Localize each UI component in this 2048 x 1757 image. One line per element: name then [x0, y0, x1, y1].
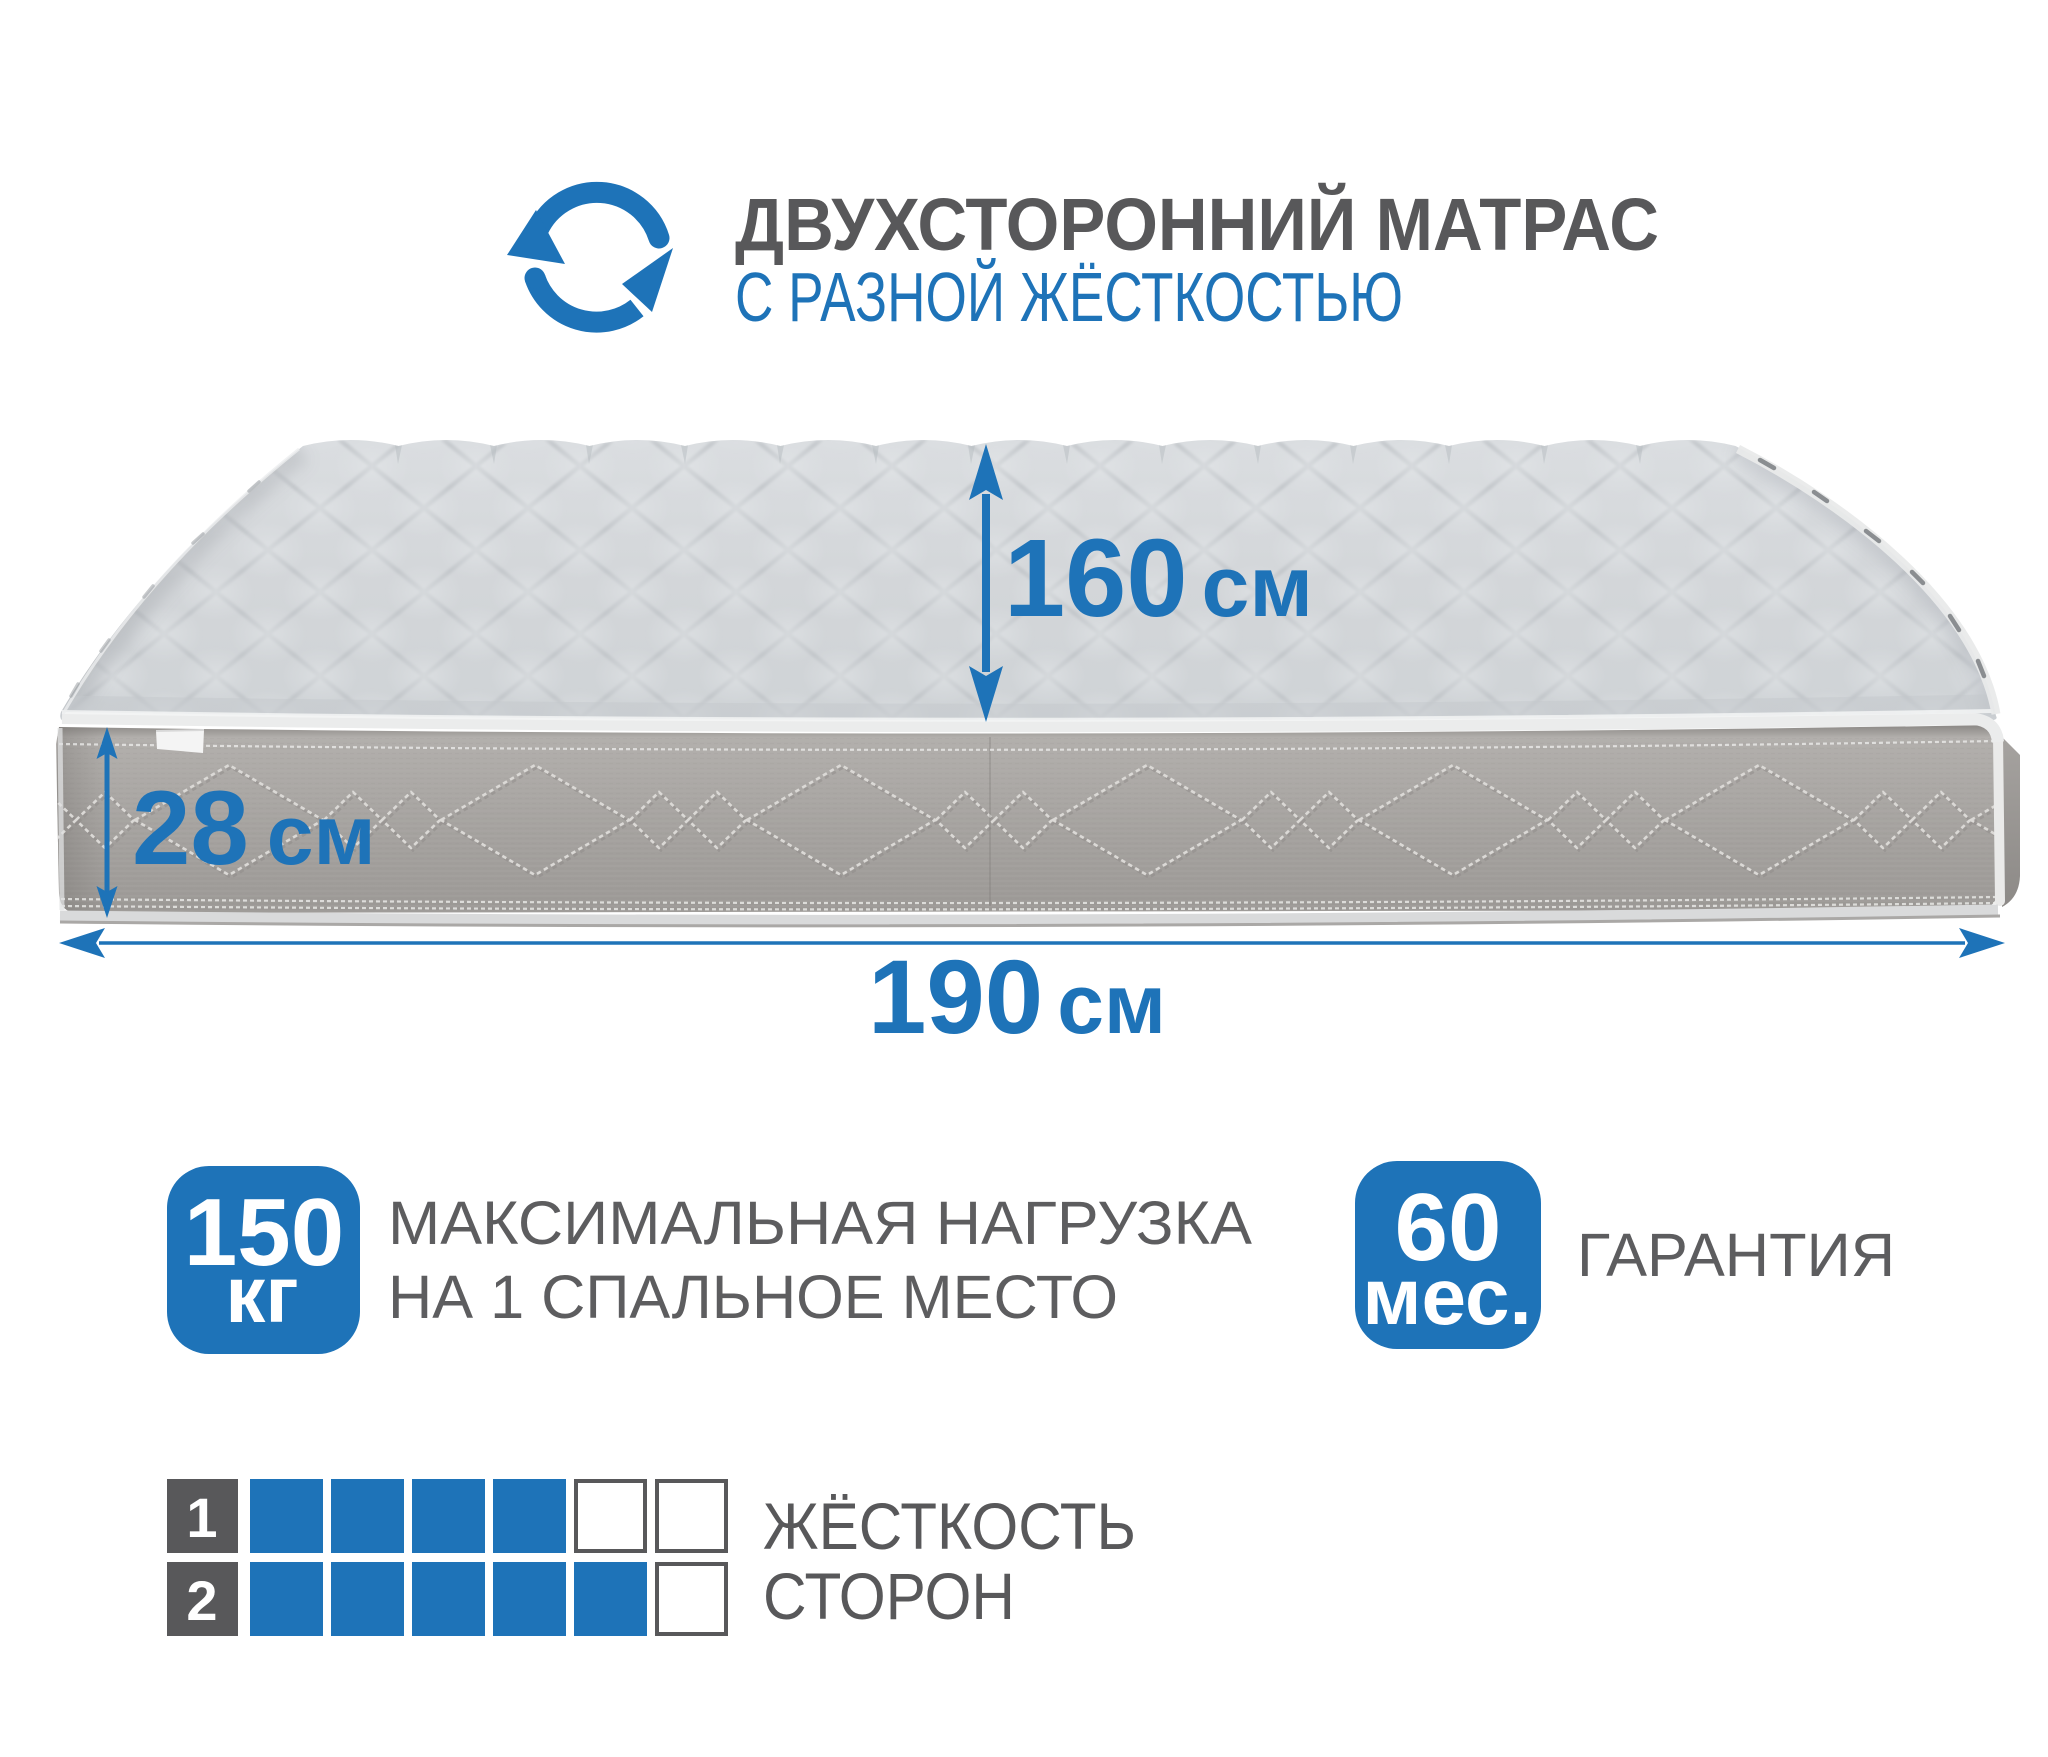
svg-text:ЖЁСТКОСТЬ: ЖЁСТКОСТЬ: [763, 1489, 1136, 1563]
svg-text:1: 1: [186, 1486, 217, 1549]
svg-text:кг: кг: [225, 1250, 298, 1339]
svg-text:190см: 190см: [868, 939, 1166, 1056]
svg-text:СТОРОН: СТОРОН: [763, 1559, 1015, 1633]
svg-text:НА 1 СПАЛЬНОЕ МЕСТО: НА 1 СПАЛЬНОЕ МЕСТО: [388, 1263, 1118, 1331]
svg-text:МАКСИМАЛЬНАЯ НАГРУЗКА: МАКСИМАЛЬНАЯ НАГРУЗКА: [388, 1189, 1252, 1257]
svg-text:ГАРАНТИЯ: ГАРАНТИЯ: [1577, 1221, 1895, 1289]
svg-text:С РАЗНОЙ ЖЁСТКОСТЬЮ: С РАЗНОЙ ЖЁСТКОСТЬЮ: [735, 257, 1403, 336]
svg-text:2: 2: [186, 1569, 217, 1632]
svg-text:мес.: мес.: [1362, 1252, 1531, 1341]
svg-text:ДВУХСТОРОННИЙ МАТРАС: ДВУХСТОРОННИЙ МАТРАС: [735, 182, 1659, 266]
